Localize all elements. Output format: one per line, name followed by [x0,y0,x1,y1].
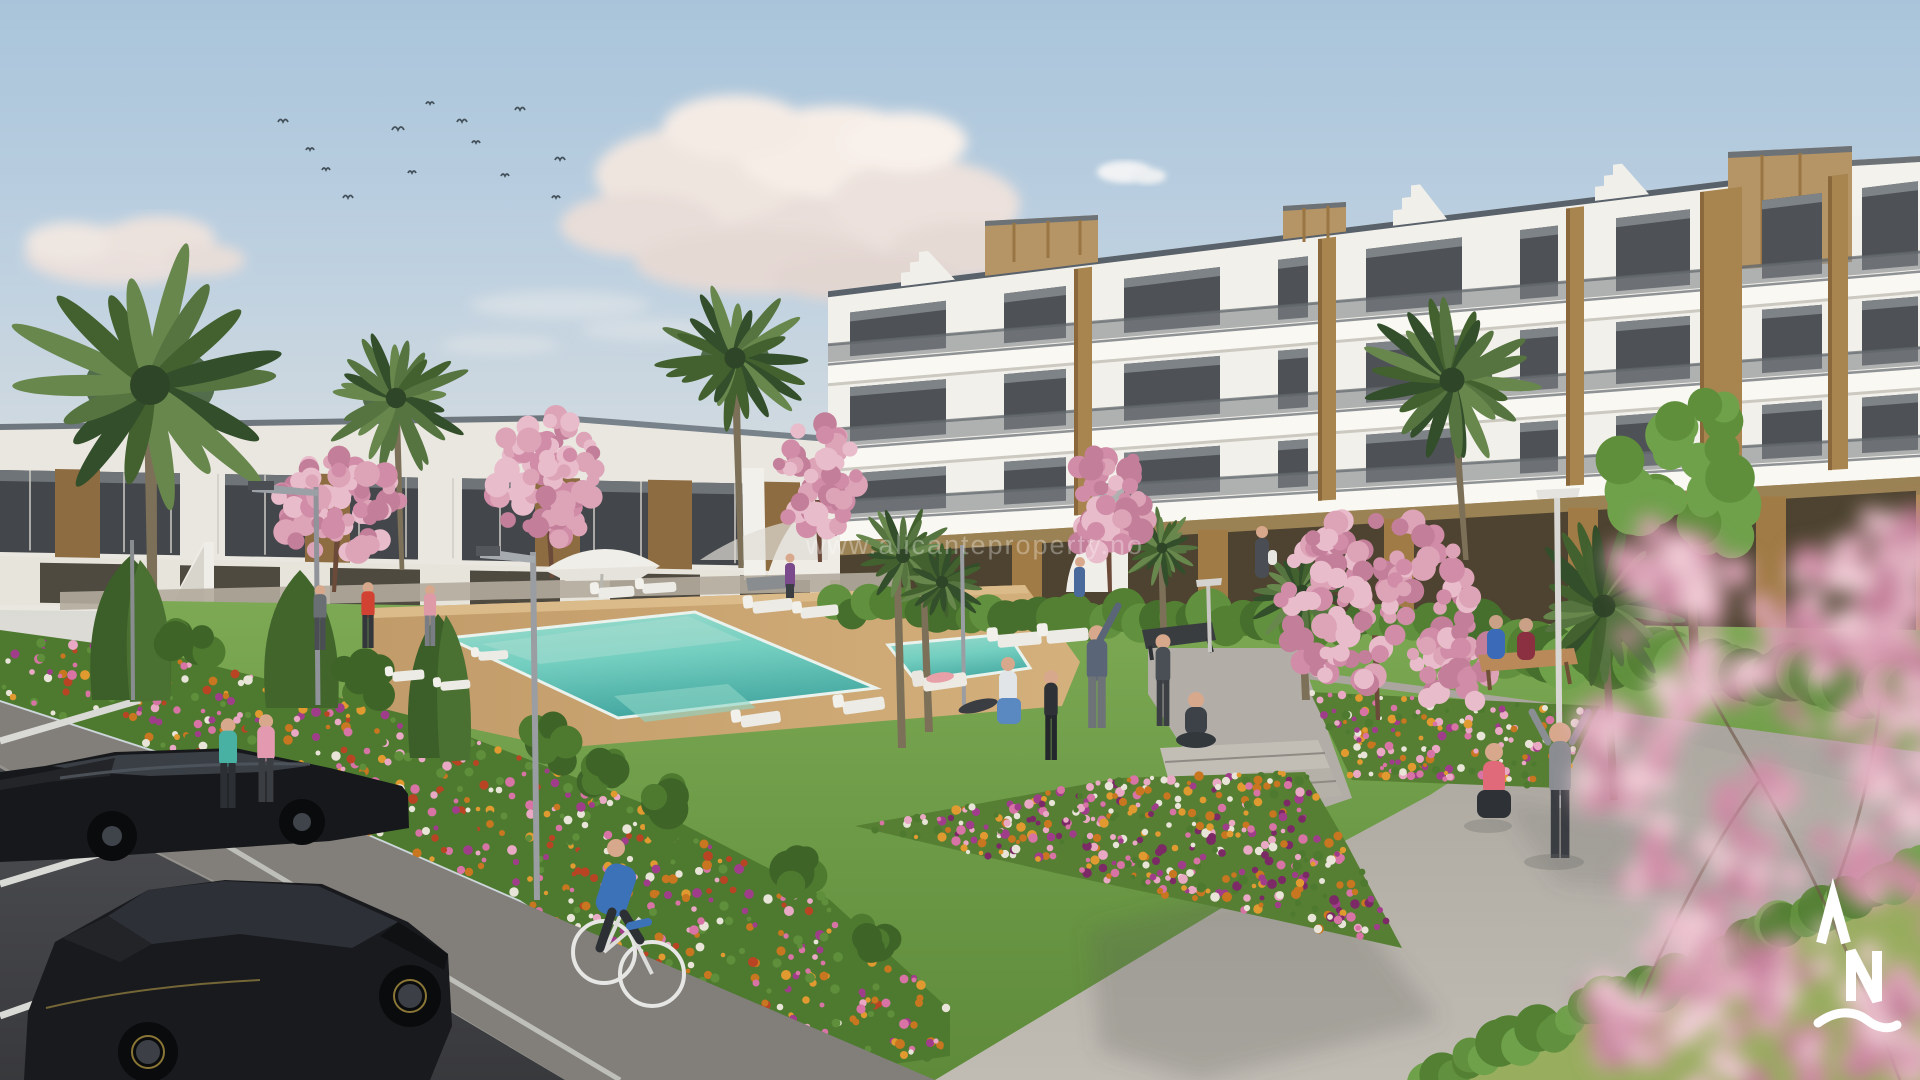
svg-text:www.alicanteproperty.no: www.alicanteproperty.no [805,530,1144,560]
